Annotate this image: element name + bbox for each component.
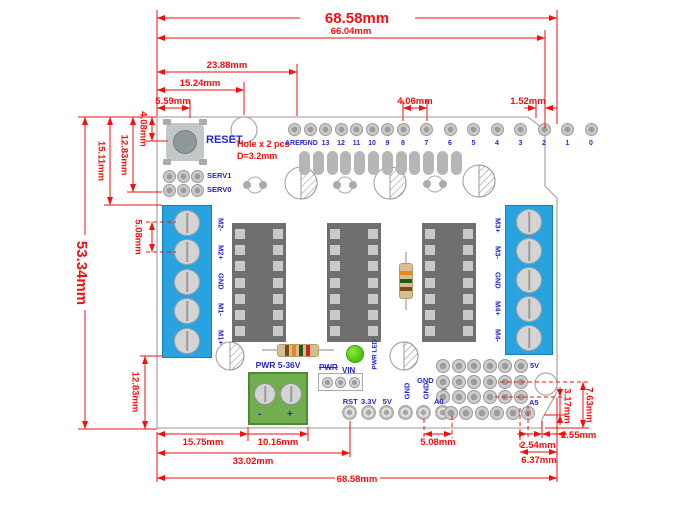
dim-terminal-top: 15.11mm	[95, 141, 106, 181]
dim-rst-offset: 33.02mm	[233, 456, 274, 467]
dim-pin0-edge: 1.52mm	[510, 96, 545, 107]
dim-serv-row: 12.83mm	[118, 135, 129, 176]
dim-hole2-offset: 23.88mm	[207, 60, 248, 71]
dim-board-height: 53.34mm	[73, 241, 90, 305]
dim-reset-offset: 5.59mm	[155, 96, 190, 107]
dim-board-width-top: 68.58mm	[325, 10, 389, 27]
dim-bottom-height: 7.63mm	[583, 387, 594, 422]
dimension-drawing: RESET Hole x 2 pcs D=3.2mm AREFGND131211…	[0, 0, 674, 510]
dim-pin-pitch: 5.08mm	[420, 437, 455, 448]
extension-lines	[78, 10, 589, 482]
dim-notch-height: 3.17mm	[561, 388, 572, 423]
dim-reset-center: 4.08mm	[137, 111, 148, 146]
dim-pad-pitch: 2.54mm	[520, 440, 555, 451]
dim-pwr-width: 10.16mm	[258, 437, 299, 448]
dim-pwr-left: 15.75mm	[183, 437, 224, 448]
dim-board-width-bottom: 68.58mm	[337, 474, 378, 485]
dim-terminal-bottom: 12.83mm	[129, 372, 140, 413]
dim-notch-width: 6.37mm	[521, 455, 556, 466]
dim-inner-width: 66.04mm	[331, 26, 372, 37]
dimension-layer: 68.58mm 66.04mm 23.88mm 15.24mm 5.59mm 4…	[0, 0, 674, 510]
dashed-reference-lines	[146, 222, 589, 448]
dim-screw-pitch: 5.08mm	[132, 219, 143, 254]
dim-header-gap: 4.06mm	[397, 96, 432, 107]
dim-edge-step: 2.55mm	[561, 430, 596, 441]
dim-hole-center: 15.24mm	[180, 78, 221, 89]
dimension-lines	[85, 18, 583, 478]
